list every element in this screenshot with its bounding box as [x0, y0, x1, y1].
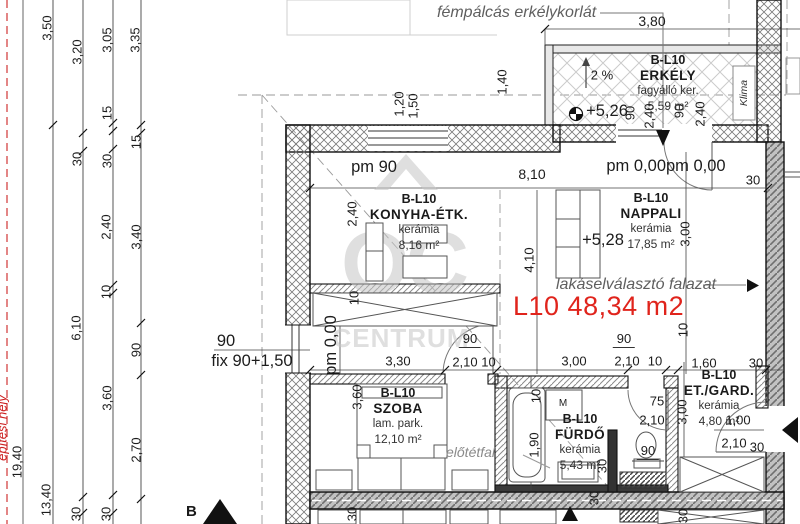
dim-label: 90: [130, 343, 143, 357]
dim-label: 3,00: [561, 355, 586, 368]
room-area: 12,10 m²: [373, 432, 424, 446]
dim-label: 2,70: [130, 437, 143, 462]
room-name: FÜRDŐ: [555, 427, 605, 443]
dim-label: 10: [100, 285, 113, 299]
room-code: B-L10: [684, 368, 754, 383]
dim-label: 15: [130, 135, 143, 149]
dim-label: 30: [70, 507, 83, 521]
dim-label: 2,40: [100, 214, 113, 239]
room-material: kerámia: [684, 400, 754, 414]
dim-label: 3,35: [129, 27, 142, 52]
room-area: 5,43 m²: [555, 458, 605, 472]
room-area: 4,80 m²: [684, 414, 754, 428]
dim-label: 6,10: [70, 315, 83, 340]
room-material: fagyálló ker.: [637, 85, 698, 99]
section-letter-label: B: [186, 503, 197, 520]
dim-label: 3,50: [41, 15, 54, 40]
dim-label: 8,10: [518, 167, 545, 181]
dim-label: pm 90: [351, 159, 397, 176]
dim-label: 1,90: [528, 432, 541, 457]
room-material: kerámia: [620, 223, 681, 237]
room-code: B-L10: [555, 412, 605, 427]
dim-label: 15: [101, 106, 114, 120]
room-material: kerámia: [370, 224, 468, 238]
room-label-gard: B-L10ET./GARD.kerámia4,80 m²: [684, 368, 754, 428]
furring-wall-callout: előtétfal: [446, 444, 495, 460]
room-area: 8,16 m²: [370, 238, 468, 252]
dim-label: 75: [650, 395, 664, 408]
dim-label: 3,05: [101, 27, 114, 52]
site-boundary-label: építési hely: [0, 395, 10, 461]
dim-label: 10: [530, 389, 543, 403]
dim-label: 30: [746, 174, 760, 187]
dim-label: 2,10: [721, 437, 746, 450]
room-code: B-L10: [620, 191, 681, 206]
dim-label: 90: [459, 332, 481, 348]
dim-label: 30: [71, 152, 84, 166]
dim-label: 90: [637, 444, 659, 460]
room-name: KONYHA-ÉTK.: [370, 207, 468, 223]
room-area: 17,85 m²: [620, 237, 681, 251]
dim-label: 1,50: [407, 93, 420, 118]
klima-label: Klima: [738, 80, 750, 106]
room-name: NAPPALI: [620, 206, 681, 222]
dim-label: 10: [648, 355, 662, 368]
labels-layer: fémpálcás erkélykorlát lakáselválasztó f…: [0, 0, 800, 524]
dim-label: 30: [588, 491, 601, 505]
dim-label: 90: [217, 333, 235, 350]
room-label-konyha: B-L10KONYHA-ÉTK.kerámia8,16 m²: [370, 192, 468, 252]
dim-label: 2,10: [614, 355, 639, 368]
dim-label: 10: [677, 323, 690, 337]
railing-callout: fémpálcás erkélykorlát: [437, 4, 596, 22]
room-label-nappali: B-L10NAPPALIkerámia17,85 m²: [620, 191, 681, 251]
room-area: 5,59 m²: [637, 99, 698, 113]
dim-label: 19,40: [11, 446, 24, 479]
room-name: ERKÉLY: [637, 68, 698, 84]
dim-label: 3,60: [351, 384, 364, 409]
dim-label: 2,40: [346, 201, 359, 226]
dim-label: 90: [613, 332, 635, 348]
dim-label: 30: [346, 507, 359, 521]
dim-label: 13,40: [40, 484, 53, 517]
dim-label: 3,20: [71, 39, 84, 64]
dim-label: pm 0,00pm 0,00: [606, 158, 725, 175]
dim-label: 4,10: [523, 247, 536, 272]
room-name: SZOBA: [373, 401, 424, 417]
dim-label: 3,40: [130, 224, 143, 249]
dim-label: 30: [100, 507, 113, 521]
dim-label: 30: [677, 509, 690, 523]
dim-label: pm 0,00: [323, 315, 340, 375]
dim-label: 30: [750, 441, 764, 454]
total-area-label: L10 48,34 m2: [513, 291, 684, 322]
room-label-szoba: B-L10SZOBAlam. park.12,10 m²: [373, 386, 424, 446]
dim-label: 3,80: [638, 14, 665, 28]
dim-label: M: [559, 399, 567, 409]
dim-label: 1,20: [393, 91, 406, 116]
room-code: B-L10: [370, 192, 468, 207]
floorplan-canvas: OC OTTHON CENTRUM: [0, 0, 800, 524]
room-material: lam. park.: [373, 418, 424, 432]
dim-label: 1,40: [496, 69, 509, 94]
room-label-furdo: B-L10FÜRDŐkerámia5,43 m²: [555, 412, 605, 472]
room-material: kerámia: [555, 444, 605, 458]
dim-label: 30: [101, 154, 114, 168]
room-label-erkely: B-L10ERKÉLYfagyálló ker.5,59 m²: [637, 53, 698, 113]
dim-label: +5,26: [586, 103, 628, 120]
dim-label: 2,10: [639, 414, 664, 427]
dim-label: 2 %: [591, 69, 613, 82]
room-code: B-L10: [373, 386, 424, 401]
room-code: B-L10: [637, 53, 698, 68]
dim-label: +5,28: [582, 232, 624, 249]
room-name: ET./GARD.: [684, 383, 754, 399]
dim-label: 10: [348, 291, 361, 305]
dim-label: 3,30: [385, 355, 410, 368]
dim-label: 3,60: [101, 385, 114, 410]
dim-label: fix 90+1,50: [211, 353, 292, 370]
dim-label: 2,10 10: [452, 356, 495, 369]
